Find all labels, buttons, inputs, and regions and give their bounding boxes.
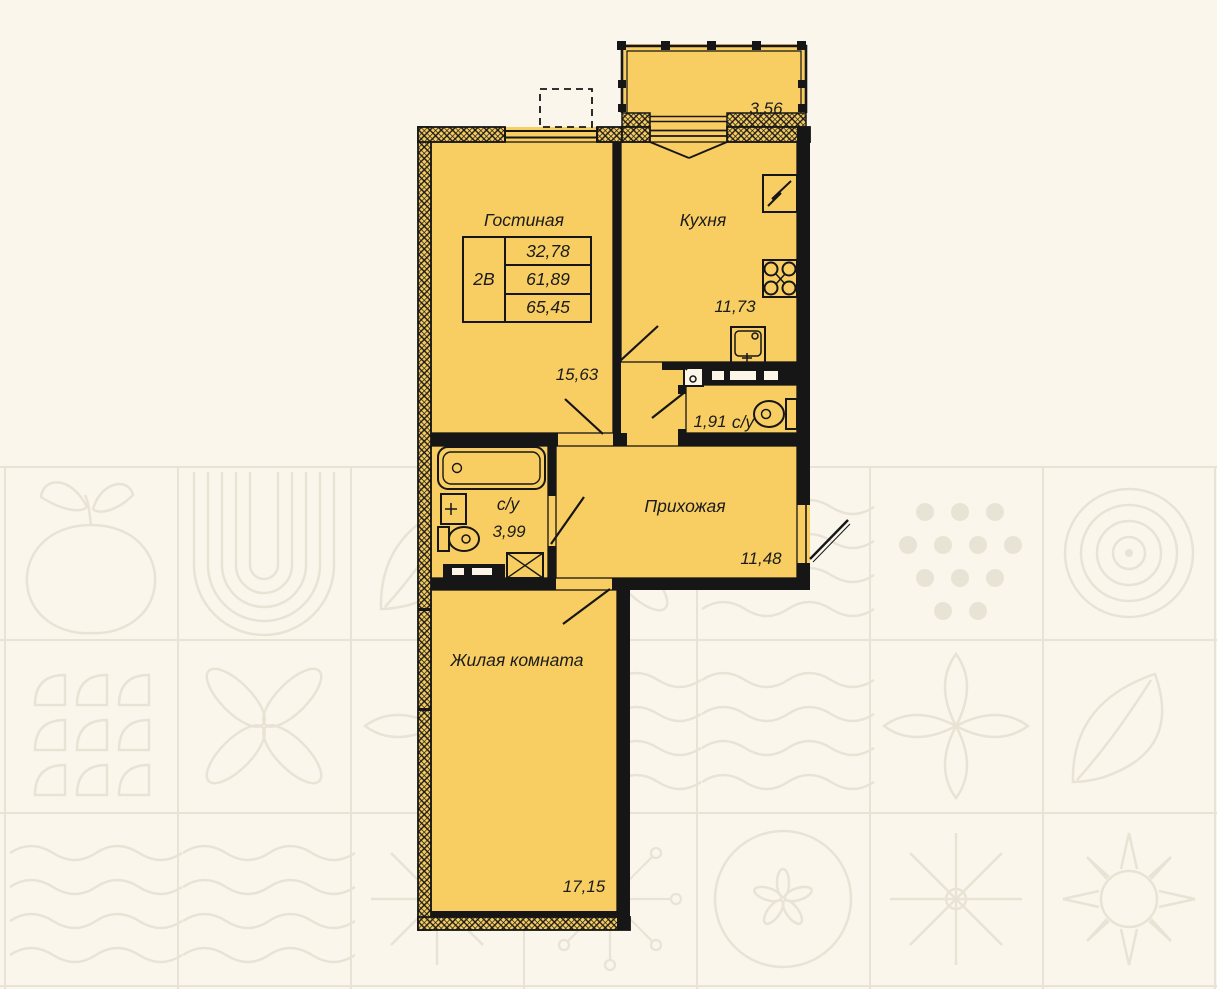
living-area-value: 32,78 bbox=[506, 238, 590, 266]
wall-joint bbox=[418, 608, 431, 611]
area-value: 61,89 bbox=[506, 266, 590, 294]
small-bathroom-label: с/у bbox=[723, 413, 763, 431]
total-area-value: 65,45 bbox=[506, 295, 590, 321]
living-room-area: 15,63 bbox=[537, 366, 617, 384]
bedroom-label: Жилая комната bbox=[442, 651, 592, 669]
kitchen-label: Кухня bbox=[663, 211, 743, 229]
unit-label: 2В bbox=[464, 238, 506, 321]
bedroom-area: 17,15 bbox=[544, 878, 624, 896]
hallway-label: Прихожая bbox=[615, 497, 755, 515]
bedroom-bottom-wall-inner bbox=[431, 911, 618, 917]
vent-duct bbox=[702, 367, 797, 385]
floor-plan bbox=[0, 0, 1217, 989]
hallway-area: 11,48 bbox=[721, 550, 801, 568]
dashed-annex bbox=[540, 89, 592, 127]
main-bathroom-label: с/у bbox=[488, 495, 528, 513]
kitchen-area: 11,73 bbox=[695, 298, 775, 316]
wall-joint bbox=[418, 708, 431, 711]
living-room-label: Гостиная bbox=[454, 211, 594, 229]
bath-vent-icon bbox=[443, 564, 505, 578]
main-bathroom-area: 3,99 bbox=[469, 523, 549, 541]
balcony-area: 3,56 bbox=[726, 100, 806, 118]
floorplan-canvas: Гостиная 15,63 2В 32,78 61,89 65,45 Кухн… bbox=[0, 0, 1217, 989]
entrance-door bbox=[806, 505, 850, 563]
apartment-info-table: 2В 32,78 61,89 65,45 bbox=[462, 236, 592, 323]
